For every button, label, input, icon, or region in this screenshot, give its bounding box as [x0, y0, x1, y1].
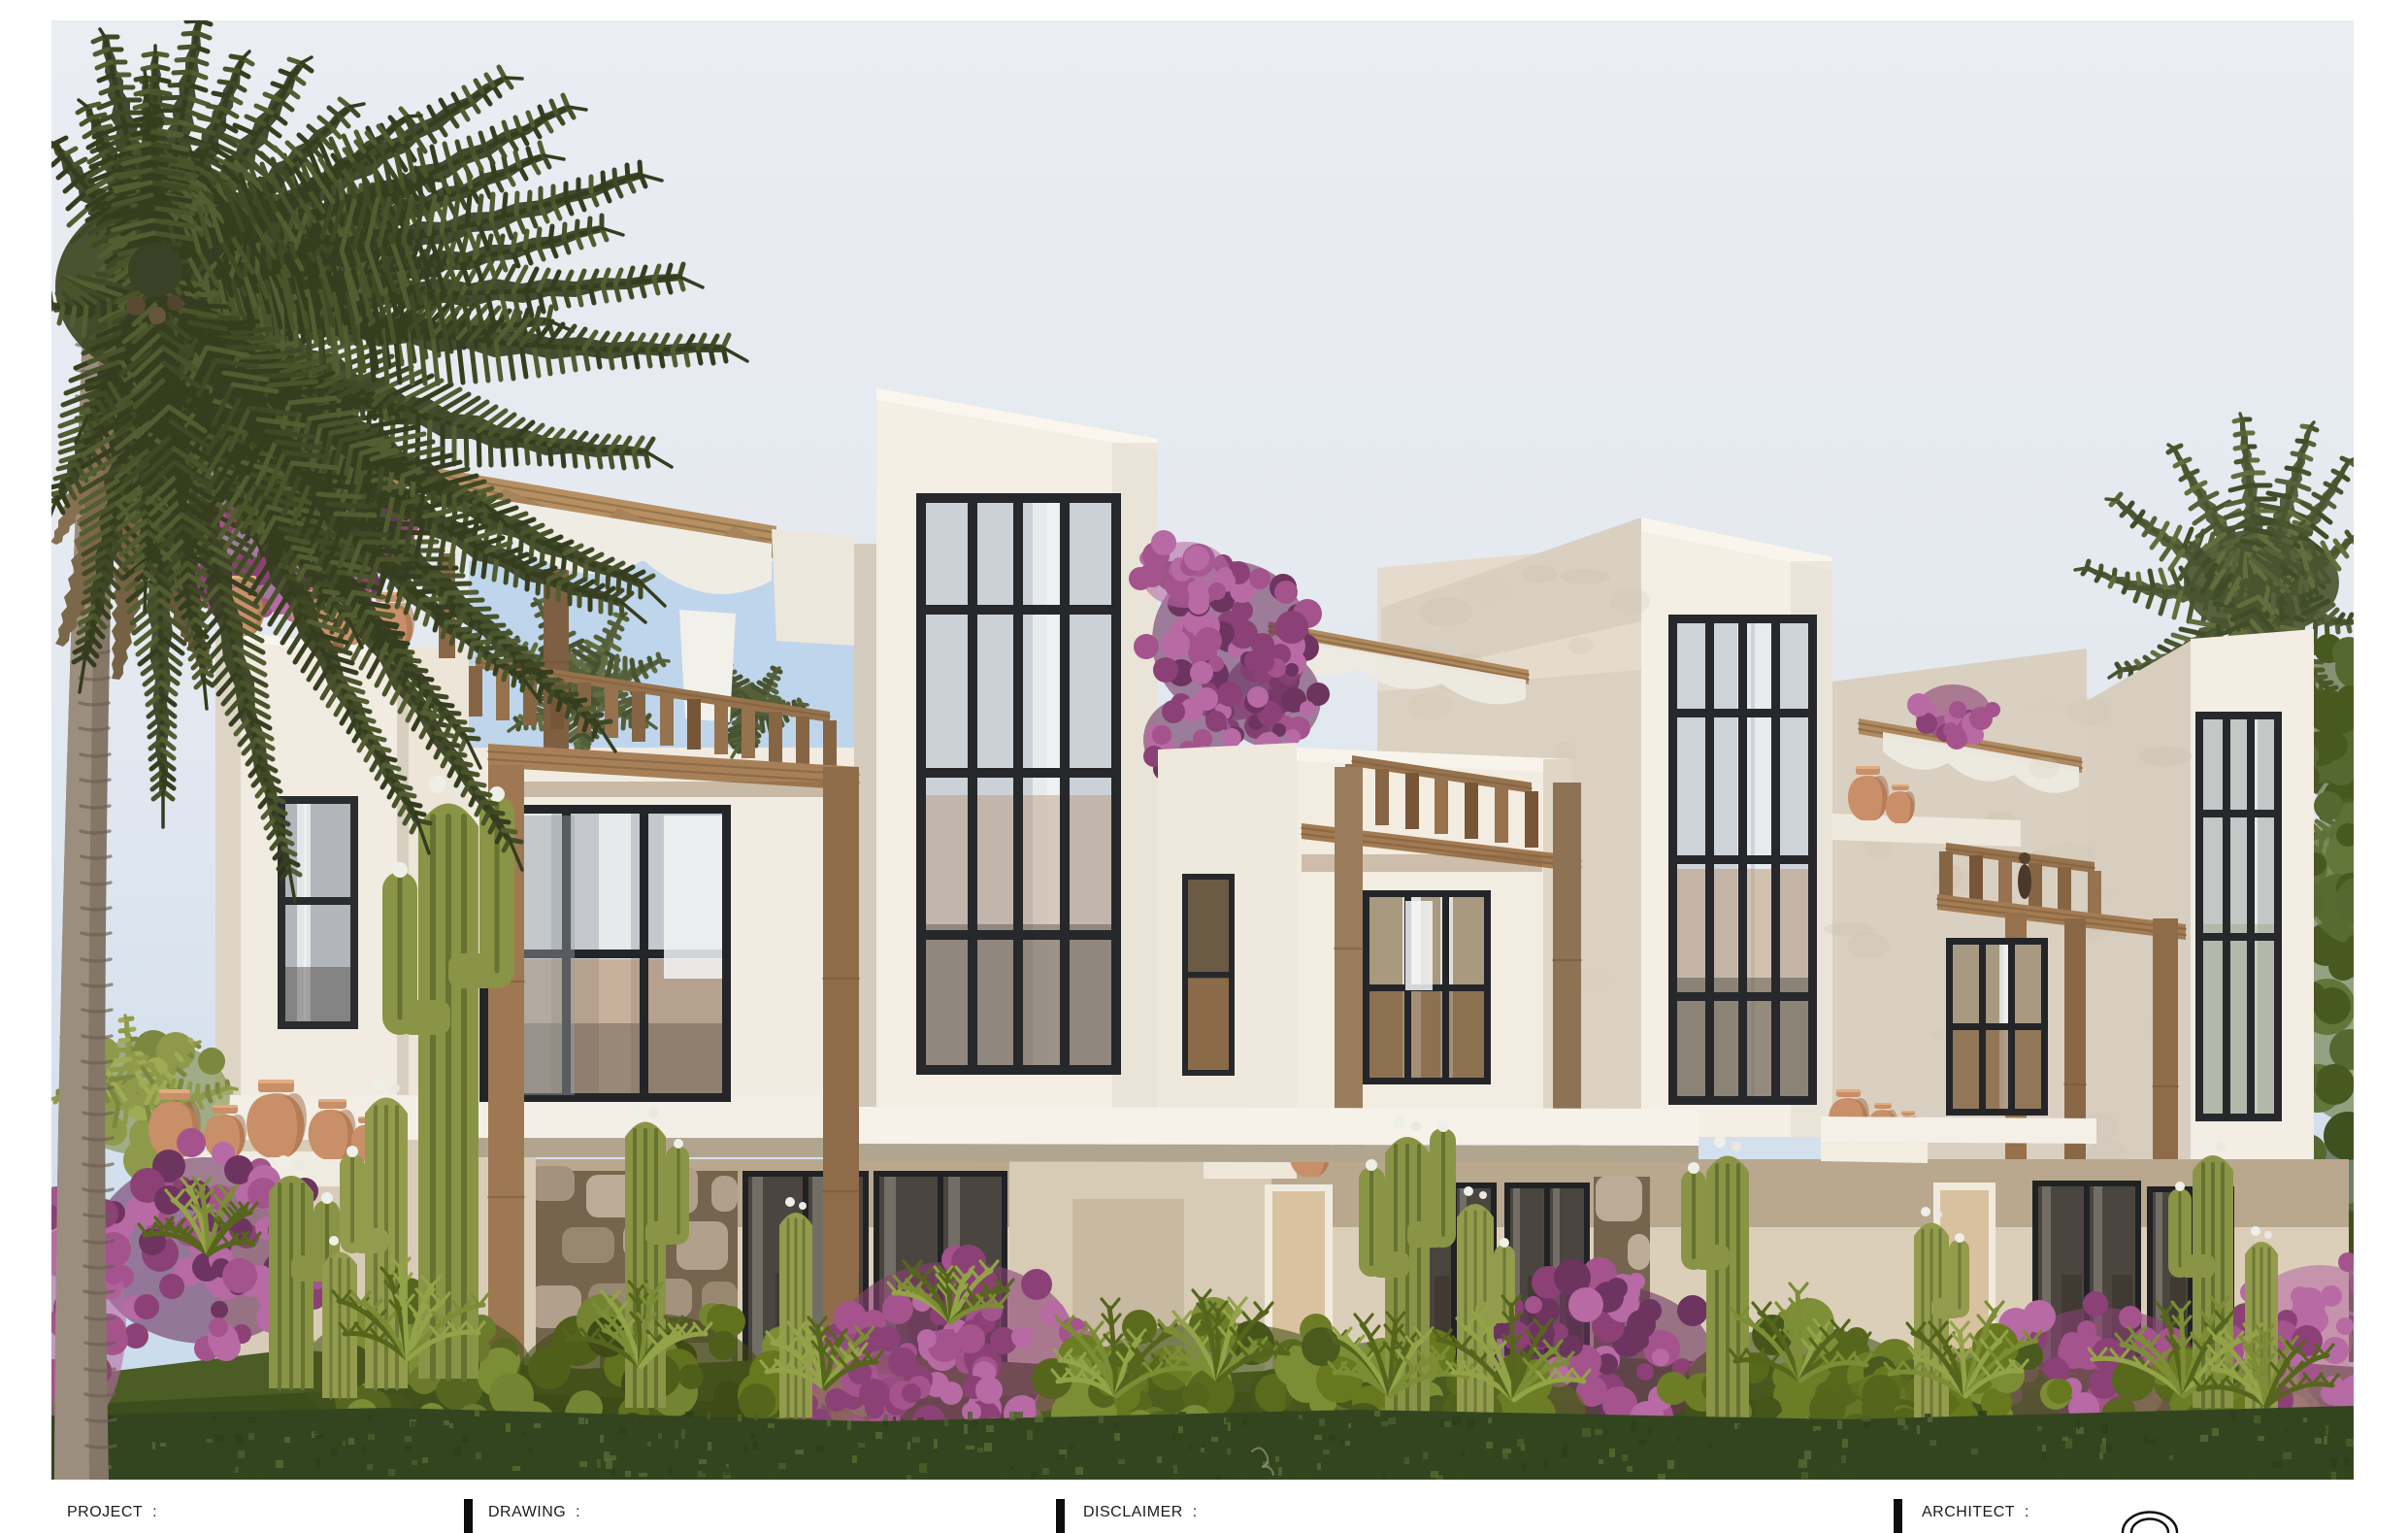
- svg-text:ARCHITECT :: ARCHITECT :: [1922, 1504, 2029, 1520]
- svg-text:PROJECT :: PROJECT :: [67, 1504, 157, 1520]
- svg-text:DISCLAIMER :: DISCLAIMER :: [1083, 1504, 1198, 1520]
- svg-text:DRAWING :: DRAWING :: [488, 1504, 580, 1520]
